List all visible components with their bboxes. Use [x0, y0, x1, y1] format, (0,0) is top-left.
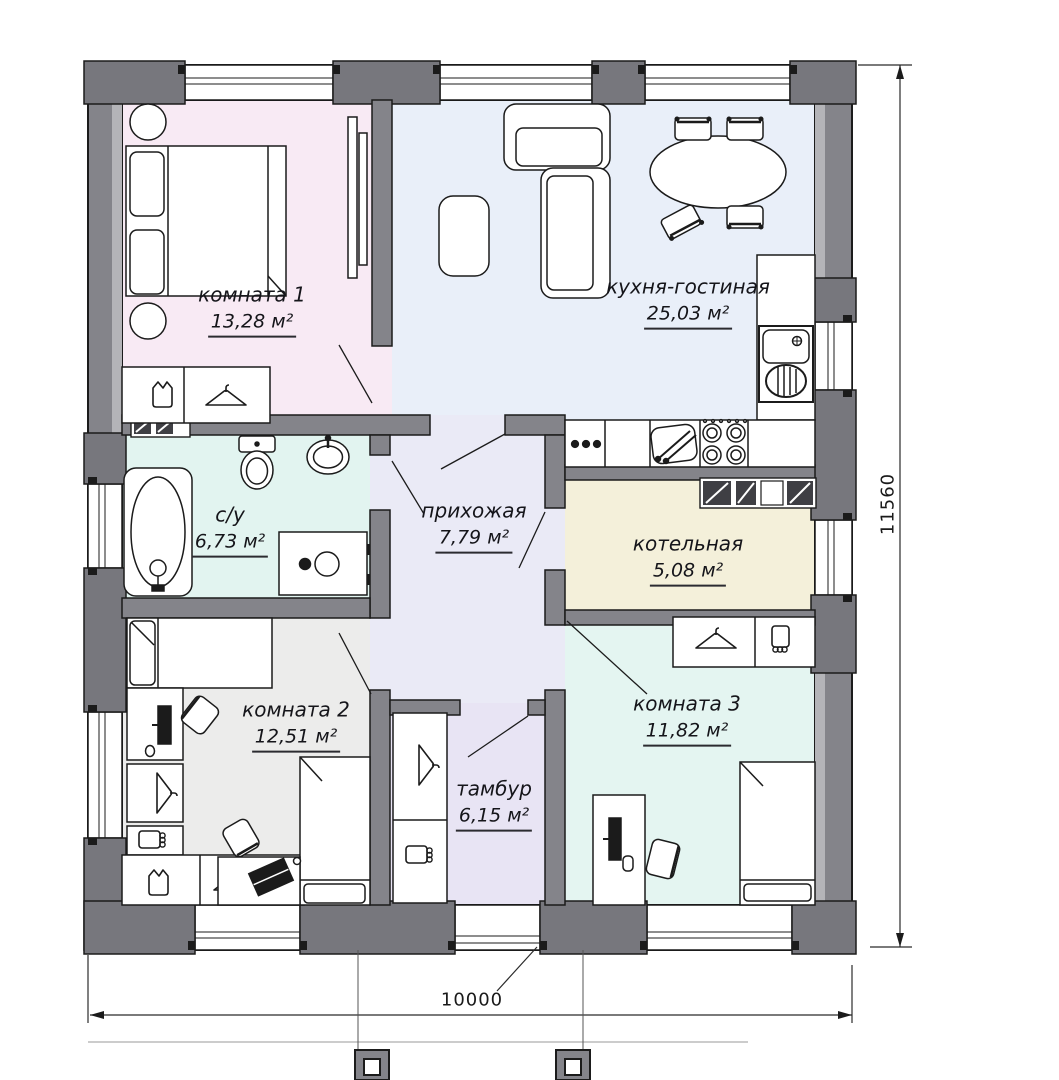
window-kitchen-right: [815, 322, 852, 390]
room-name: котельная: [633, 532, 743, 557]
door-bathroom: [392, 461, 424, 514]
kitchen-sink: [759, 326, 813, 402]
vent-shaft-boiler: [700, 478, 816, 508]
double-bed: [126, 146, 286, 296]
room-name: прихожая: [421, 499, 526, 524]
small-cabinet: [127, 826, 183, 855]
overall-height-dimension: 11560: [878, 473, 899, 535]
door-room2: [339, 633, 371, 694]
room-name: с/у: [192, 503, 268, 528]
overall-width-dimension: 10000: [441, 990, 503, 1011]
kitchen-living-label: кухня-гостиная 25,03 м²: [606, 275, 770, 330]
plan-linework: [0, 0, 1059, 1080]
room3-furniture: [593, 617, 815, 905]
leader-line: [497, 947, 537, 991]
room1-furniture: [122, 104, 367, 423]
corner-sofa: [504, 104, 610, 298]
bed: [300, 757, 370, 905]
wardrobe: [122, 367, 270, 423]
chair: [727, 206, 763, 229]
room-area: 25,03 м²: [644, 303, 732, 330]
room3-label: комната 3 11,82 м²: [633, 692, 741, 747]
room2-label: комната 2 12,51 м²: [242, 698, 350, 753]
dining-set: [650, 117, 786, 241]
window-kitchen-top-right: [645, 65, 790, 100]
room-name: комната 1: [198, 283, 306, 308]
toilet: [239, 436, 275, 489]
desk-with-laptop: [218, 857, 301, 905]
vestibule-furniture: [393, 713, 447, 903]
window-bathroom-left: [88, 484, 122, 568]
cutting-board: [650, 423, 698, 464]
chair: [675, 117, 711, 140]
desk-chair: [645, 838, 681, 880]
boiler-room-label: котельная 5,08 м²: [633, 532, 743, 587]
desk-chair: [221, 817, 261, 859]
room-area: 13,28 м²: [208, 311, 296, 338]
desk-with-computer: [593, 795, 645, 905]
door-kitchen-hallway: [441, 434, 505, 469]
room-area: 5,08 м²: [650, 560, 726, 587]
window-boiler-right: [815, 520, 852, 595]
floor-plan: комната 1 13,28 м² кухня-гостиная 25,03 …: [0, 0, 1059, 1080]
hallway-label: прихожая 7,79 м²: [421, 499, 526, 554]
chair: [727, 117, 763, 140]
window-kitchen-top-left: [440, 65, 592, 100]
bathtub: [124, 468, 192, 596]
bed: [740, 762, 815, 905]
room-name: тамбур: [456, 777, 532, 802]
entrance-door-opening: [455, 905, 540, 950]
bed: [127, 618, 272, 688]
room-area: 6,15 м²: [456, 805, 532, 832]
desk-chair: [179, 694, 221, 736]
washing-machine: [279, 532, 367, 595]
window-room3-bottom: [647, 905, 792, 950]
desk-with-computer: [127, 688, 183, 760]
dishwasher: [572, 441, 601, 448]
door-room1: [339, 345, 372, 403]
nightstand: [130, 303, 166, 339]
dimension-bottom: [88, 947, 852, 1023]
room1-label: комната 1 13,28 м²: [198, 283, 306, 338]
vestibule-label: тамбур 6,15 м²: [456, 777, 532, 832]
room-name: кухня-гостиная: [606, 275, 770, 300]
coffee-table: [439, 196, 489, 276]
room-name: комната 3: [633, 692, 741, 717]
porch-column: [355, 1050, 389, 1080]
wardrobe: [673, 617, 815, 667]
door-vestibule: [468, 716, 528, 757]
tv-console: [348, 117, 367, 278]
bathroom-label: с/у 6,73 м²: [192, 503, 268, 558]
room2-furniture: [122, 618, 370, 905]
room-area: 7,79 м²: [436, 527, 512, 554]
entry-closet: [393, 713, 447, 903]
window-room2-bottom: [195, 905, 300, 950]
room-area: 11,82 м²: [643, 720, 731, 747]
window-room1-top: [185, 65, 333, 100]
nightstand: [130, 104, 166, 140]
room-area: 6,73 м²: [192, 531, 268, 558]
door-room3: [567, 621, 647, 694]
porch-column: [556, 1050, 590, 1080]
washbasin: [307, 436, 349, 475]
room-name: комната 2: [242, 698, 350, 723]
hanger-cabinet: [127, 764, 183, 822]
chair: [660, 203, 704, 241]
room-area: 12,51 м²: [252, 726, 340, 753]
window-room2-left: [88, 712, 122, 838]
